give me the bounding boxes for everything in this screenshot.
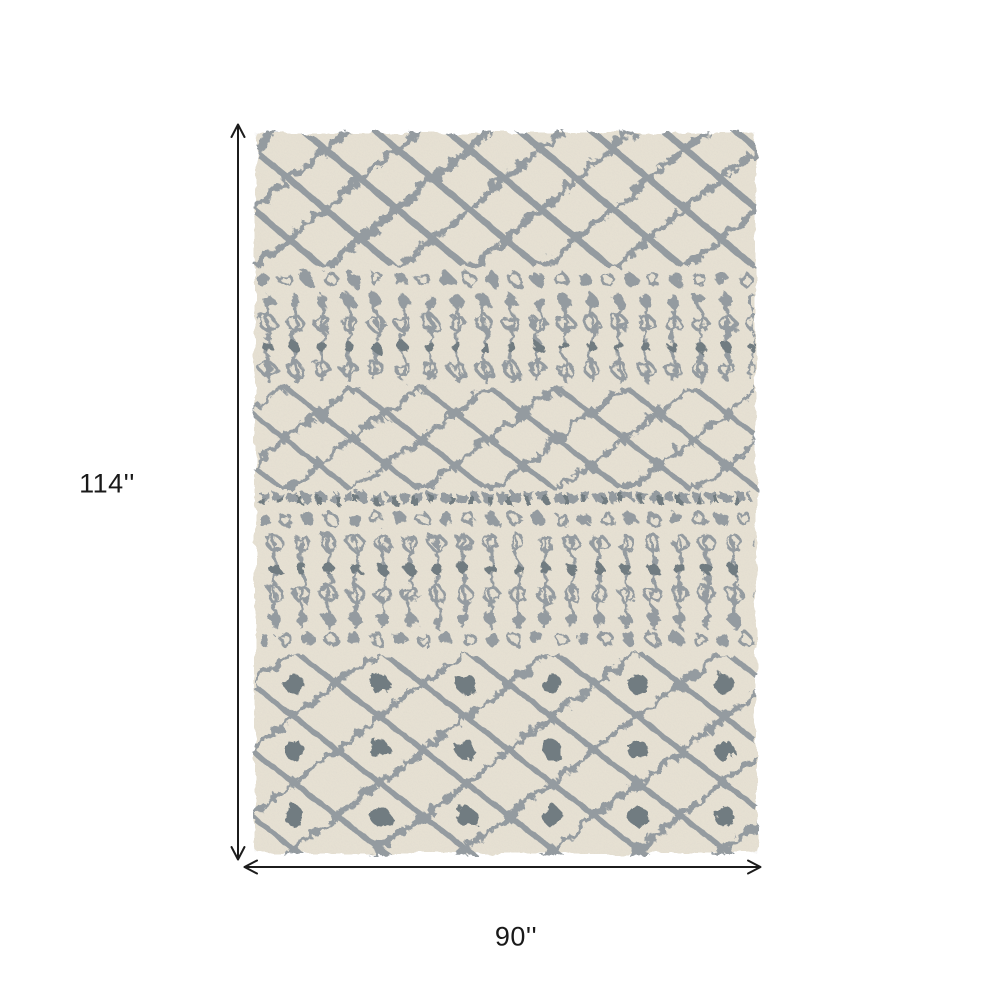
band-dot-row-1 (257, 269, 754, 289)
band-trellis-dots-bottom (255, 655, 756, 855)
height-dimension-label: 114'' (79, 471, 135, 498)
band-dot-row-3 (261, 632, 754, 652)
band-trellis-knots (255, 387, 756, 489)
rug-image (251, 129, 760, 857)
band-dot-row-2 (259, 509, 752, 529)
width-dimension-label: 90'' (495, 924, 537, 951)
band-beaded-columns-2 (257, 531, 754, 630)
band-beaded-columns-1 (257, 292, 754, 384)
rug-pattern (255, 132, 756, 855)
rug-photo (251, 129, 760, 857)
rug-body (255, 132, 756, 855)
product-dimension-image: 114'' 90'' (0, 0, 1000, 1000)
band-trellis-top (255, 132, 756, 267)
